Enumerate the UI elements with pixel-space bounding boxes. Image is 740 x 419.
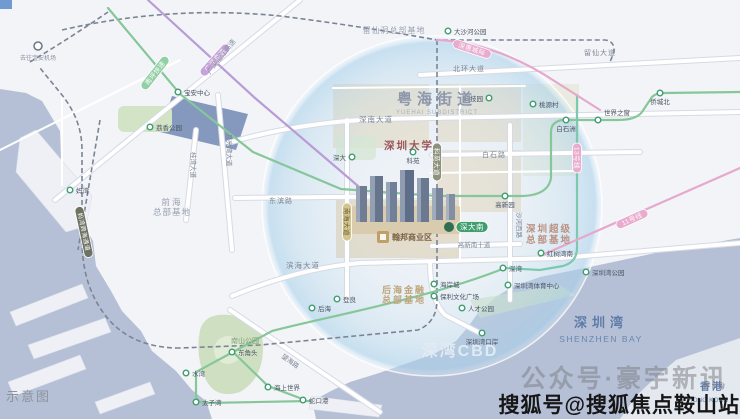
- station-dot: [486, 95, 492, 101]
- road-dongbin: 东滨路: [269, 196, 293, 205]
- road-shennan: 深南大道: [359, 114, 393, 124]
- station-label: 蛇口港: [309, 396, 329, 405]
- capsule-label: 南海大道: [343, 208, 352, 236]
- road-baishi: 白石路: [482, 150, 506, 159]
- project-label: 翰邦商业区: [392, 232, 432, 242]
- station-dot: [530, 101, 536, 107]
- station-dot: [300, 397, 306, 403]
- station-label: 深湾: [509, 264, 523, 273]
- map-canvas: 翰邦商业区 南坪快速广深高速深惠城际11号线13号线科苑大道南海大道妈湾跨海通道…: [0, 0, 740, 419]
- station-label: 大沙河公园: [454, 27, 487, 36]
- station-label: 红树湾南: [547, 249, 574, 258]
- station-dot: [229, 349, 235, 355]
- road-liuxian: 留仙大道: [584, 48, 616, 57]
- station-label: 海岸城: [440, 280, 460, 289]
- line-capsule: 南海大道: [343, 203, 352, 241]
- station-label: 登良: [343, 295, 357, 304]
- station-dot: [309, 305, 315, 311]
- yuehai-street-en: YUEHAI SUBDISTRICT: [396, 110, 478, 116]
- road-beihuan: 北环大道: [453, 64, 485, 73]
- station-label: 深圳湾体育中心: [514, 281, 560, 290]
- station-label: 深圳湾公园: [592, 268, 625, 277]
- station-label: 侨城北: [650, 97, 670, 106]
- station-dot: [595, 117, 601, 123]
- station-label: 荔香公园: [156, 123, 182, 132]
- station-label: 人才公园: [468, 304, 494, 313]
- station-label: 白石洲: [556, 124, 576, 133]
- capsule-label: 科苑大道: [433, 148, 442, 176]
- station-dot: [67, 187, 73, 193]
- station-label: 宝安中心: [184, 88, 211, 97]
- station-dot: [505, 282, 511, 288]
- station-label: 保利文化广场: [440, 292, 480, 301]
- station-label: 水湾: [192, 369, 206, 378]
- shenwan-cbd: 深湾CBD: [422, 341, 499, 360]
- road-yueliangwan: 月亮湾大道: [225, 134, 234, 167]
- airport-note: 去往宝安机场: [20, 54, 56, 62]
- station-dot: [431, 293, 437, 299]
- capsule-label: 13号线: [573, 147, 582, 169]
- station-dot: [583, 269, 589, 275]
- schematic-watermark: 示意图: [6, 386, 51, 405]
- super-hq-2: 总部基地: [526, 234, 572, 246]
- station-dot: [479, 330, 485, 336]
- metro-logo-icon: [444, 222, 454, 232]
- line-capsule: 深大南: [456, 222, 488, 233]
- station-dot: [502, 193, 508, 199]
- shenzhen-bay: 深圳湾: [574, 315, 628, 330]
- station-label: 深大: [333, 153, 347, 162]
- station-dot: [334, 296, 340, 302]
- capsule-label: 深大南: [460, 222, 484, 232]
- qianhai-hq-2: 总部基地: [153, 207, 191, 217]
- sohu-watermark: 搜狐号@搜狐焦点鞍山站: [499, 389, 740, 419]
- station-dot: [349, 154, 355, 160]
- houhai-hq-1: 后海金融: [382, 284, 426, 295]
- shenzhen-bay-en: SHENZHEN BAY: [559, 334, 643, 344]
- station-label: 高新园: [495, 200, 515, 209]
- station-dot: [175, 89, 181, 95]
- station-dot: [459, 305, 465, 311]
- station-dot: [563, 117, 569, 123]
- station-dot: [183, 370, 189, 376]
- legend-chip: [0, 0, 12, 9]
- station-label: 妈湾: [76, 186, 90, 195]
- station-dot: [265, 384, 271, 390]
- road-guiwan: 桂湾大道: [189, 152, 198, 179]
- station-label: 太子湾: [202, 398, 222, 407]
- super-hq-1: 深圳超级: [526, 223, 572, 235]
- station-dot: [538, 250, 544, 256]
- yuehai-street: 粤海街道: [397, 90, 477, 108]
- nanshan-park-label: 南山公园: [231, 336, 259, 345]
- station-label: 海上世界: [274, 383, 301, 392]
- qianhai-hq-1: 前海: [161, 197, 182, 207]
- map-page: 翰邦商业区 南坪快速广深高速深惠城际11号线13号线科苑大道南海大道妈湾跨海通道…: [0, 0, 740, 419]
- houhai-hq-2: 总部基地: [382, 294, 426, 305]
- station-dot: [193, 399, 199, 405]
- station-label: 东角头: [238, 348, 258, 357]
- station-dot: [147, 124, 153, 130]
- shenzhen-university: 深圳大学: [384, 139, 434, 152]
- station-dot: [500, 265, 506, 271]
- liuxiandong-hq: 留仙洞总部基地: [363, 25, 426, 35]
- station-dot: [657, 90, 663, 96]
- station-label: 桃源村: [539, 100, 559, 109]
- station-label: 后海: [318, 304, 332, 313]
- airport-icon: [34, 42, 42, 50]
- road-binhai: 滨海大道: [286, 260, 320, 270]
- station-label: 世界之窗: [604, 108, 630, 117]
- road-shahexi: 沙河西路: [515, 212, 524, 239]
- station-dot: [431, 281, 437, 287]
- station-dot: [445, 28, 451, 34]
- station-label: 科苑: [407, 156, 421, 165]
- road-gaoxin-s10: 高新南十道: [458, 240, 491, 249]
- line-capsule: 13号线: [573, 143, 582, 173]
